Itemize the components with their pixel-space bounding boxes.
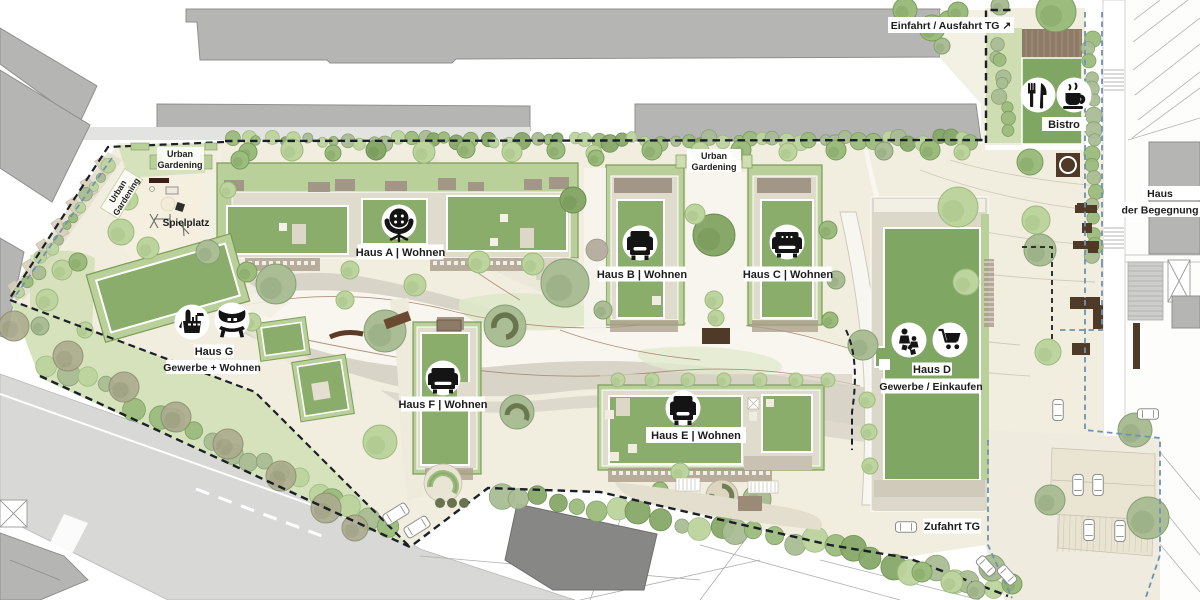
svg-text:Gewerbe / Einkaufen: Gewerbe / Einkaufen [879, 381, 982, 393]
svg-text:Haus B | Wohnen: Haus B | Wohnen [597, 269, 688, 281]
svg-text:Zufahrt TG: Zufahrt TG [924, 521, 980, 533]
svg-text:Einfahrt / Ausfahrt TG ↗: Einfahrt / Ausfahrt TG ↗ [891, 20, 1011, 32]
svg-text:Gardening: Gardening [157, 160, 202, 170]
svg-text:Urban: Urban [167, 149, 193, 159]
svg-text:Haus F | Wohnen: Haus F | Wohnen [398, 399, 487, 411]
svg-text:Haus C | Wohnen: Haus C | Wohnen [743, 269, 834, 281]
svg-text:Haus D: Haus D [913, 364, 951, 376]
svg-text:Gardening: Gardening [691, 162, 736, 172]
svg-text:Bistro: Bistro [1048, 119, 1080, 131]
svg-text:Haus G: Haus G [195, 346, 234, 358]
svg-text:Haus: Haus [1147, 188, 1173, 200]
svg-text:Haus E | Wohnen: Haus E | Wohnen [651, 430, 741, 442]
svg-text:Urban: Urban [701, 151, 727, 161]
svg-text:Haus A | Wohnen: Haus A | Wohnen [356, 247, 446, 259]
svg-text:Gewerbe + Wohnen: Gewerbe + Wohnen [163, 362, 261, 374]
svg-text:der Begegnung: der Begegnung [1121, 205, 1198, 217]
svg-text:Spielplatz: Spielplatz [163, 218, 210, 229]
